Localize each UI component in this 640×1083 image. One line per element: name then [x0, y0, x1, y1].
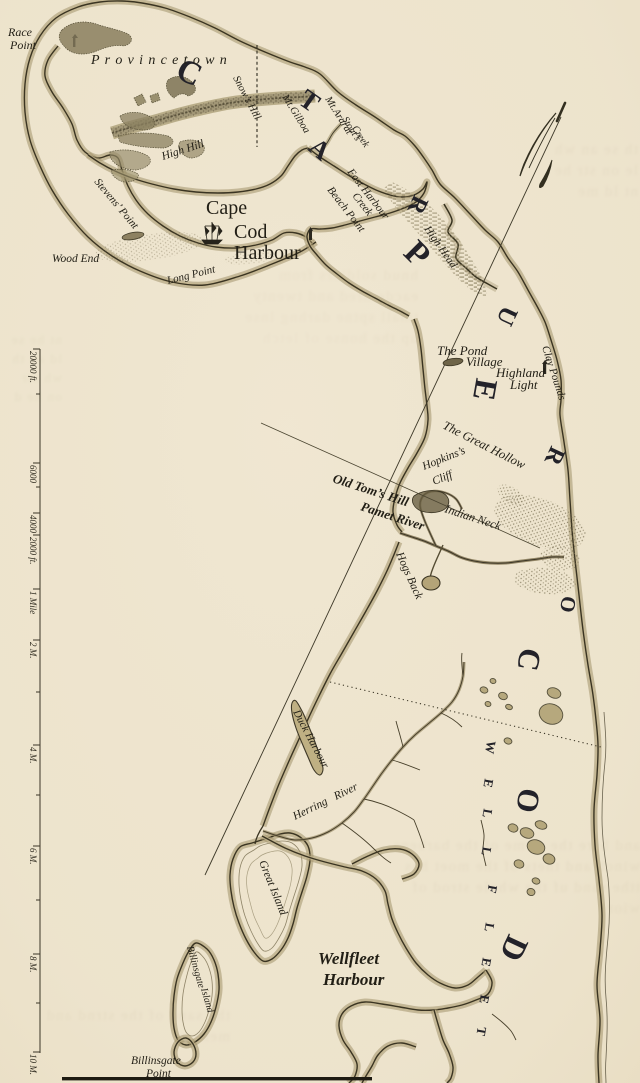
svg-text:8 M.: 8 M. [28, 956, 38, 973]
svg-text:2000 ft.: 2000 ft. [28, 537, 38, 565]
svg-text:Wellfleet: Wellfleet [318, 949, 380, 968]
svg-text:Point: Point [9, 38, 37, 52]
svg-text:2 M.: 2 M. [28, 642, 38, 659]
svg-text:20000 ft.: 20000 ft. [28, 351, 38, 383]
svg-text:6 M.: 6 M. [28, 848, 38, 865]
svg-text:Wood End: Wood End [52, 253, 99, 265]
svg-text:Cod: Cod [234, 221, 267, 243]
svg-text:1 Mile: 1 Mile [28, 591, 38, 614]
svg-text:Race: Race [7, 25, 33, 39]
svg-text:Billinsgate: Billinsgate [131, 1055, 181, 1067]
svg-text:Cape: Cape [206, 197, 247, 219]
svg-text:Harbour: Harbour [322, 970, 385, 989]
svg-text:4 M.: 4 M. [28, 747, 38, 764]
svg-text:W: W [482, 740, 499, 755]
svg-text:10 M.: 10 M. [28, 1054, 38, 1075]
svg-text:Point: Point [145, 1068, 172, 1080]
svg-text:Light: Light [509, 377, 538, 392]
svg-text:Harbour: Harbour [234, 242, 301, 264]
svg-text:6000: 6000 [28, 465, 38, 484]
svg-text:4000: 4000 [28, 515, 38, 534]
svg-text:P r o v i n c e t o w n: P r o v i n c e t o w n [90, 53, 228, 68]
